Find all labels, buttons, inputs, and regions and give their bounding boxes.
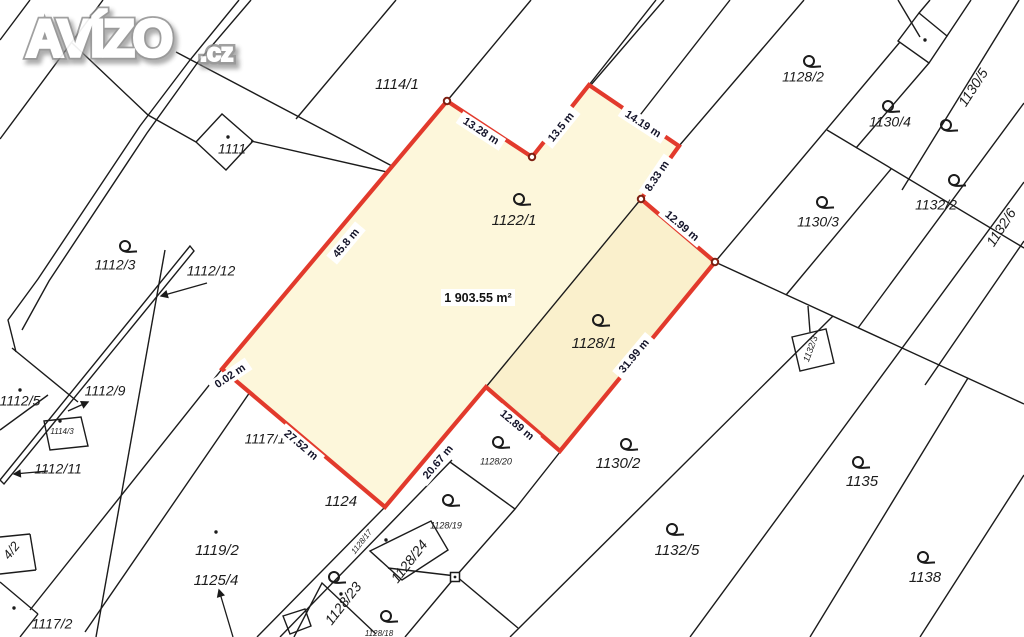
svg-text:1132/2: 1132/2	[915, 197, 957, 213]
svg-text:1130/4: 1130/4	[869, 114, 911, 130]
svg-text:1111: 1111	[218, 141, 246, 157]
svg-text:1128/2: 1128/2	[782, 69, 824, 85]
svg-text:1128/18: 1128/18	[365, 629, 394, 637]
svg-text:1112/5: 1112/5	[0, 393, 41, 409]
svg-text:1128/19: 1128/19	[430, 520, 462, 530]
svg-text:1112/9: 1112/9	[85, 383, 126, 399]
svg-text:1130/3: 1130/3	[797, 214, 839, 230]
svg-text:1112/12: 1112/12	[187, 263, 236, 279]
svg-text:.cz: .cz	[200, 39, 233, 67]
svg-text:1114/1: 1114/1	[375, 76, 419, 93]
svg-text:1125/4: 1125/4	[194, 572, 239, 589]
svg-text:1132/5: 1132/5	[655, 542, 700, 559]
svg-text:1122/1: 1122/1	[492, 212, 537, 229]
svg-text:1112/11: 1112/11	[34, 461, 82, 477]
svg-text:1128/1: 1128/1	[572, 335, 617, 352]
svg-text:1112/3: 1112/3	[95, 257, 136, 273]
svg-text:1128/20: 1128/20	[480, 456, 512, 466]
svg-text:1135: 1135	[846, 473, 879, 490]
svg-text:1119/2: 1119/2	[195, 542, 239, 559]
svg-text:1 903.55 m²: 1 903.55 m²	[444, 291, 511, 305]
svg-text:1124: 1124	[325, 493, 357, 510]
svg-text:AVÍZO: AVÍZO	[26, 10, 172, 68]
svg-text:1114/3: 1114/3	[50, 427, 74, 436]
svg-text:1130/2: 1130/2	[596, 455, 641, 472]
svg-text:1138: 1138	[909, 569, 942, 586]
svg-text:1117/2: 1117/2	[32, 616, 73, 632]
